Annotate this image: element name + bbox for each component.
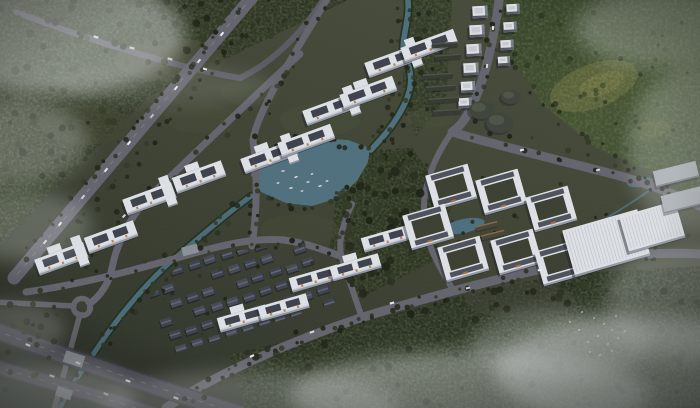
vignette [0,0,700,408]
scene-svg [0,0,700,408]
render-canvas [0,0,700,408]
aerial-masterplan-render [0,0,700,408]
